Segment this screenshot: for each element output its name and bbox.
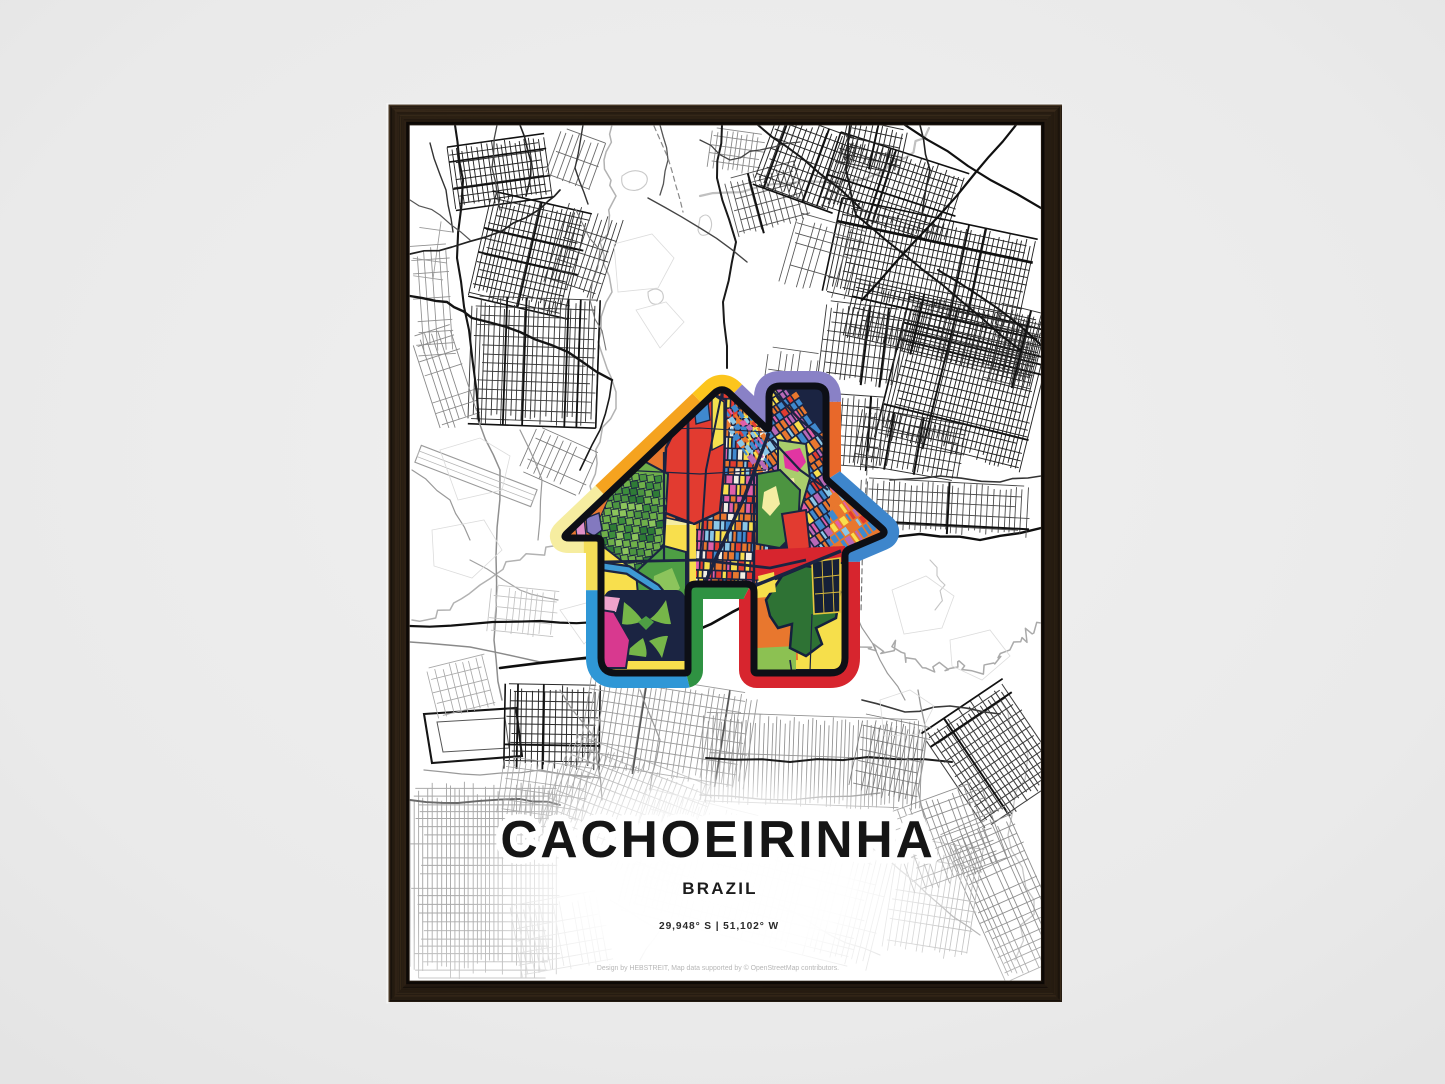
svg-text:Design by HEBSTREIT, Map data: Design by HEBSTREIT, Map data supported … bbox=[597, 964, 839, 972]
svg-text:BRAZIL: BRAZIL bbox=[682, 879, 758, 898]
svg-text:29,948° S | 51,102° W: 29,948° S | 51,102° W bbox=[659, 921, 779, 932]
svg-text:CACHOEIRINHA: CACHOEIRINHA bbox=[500, 810, 935, 868]
